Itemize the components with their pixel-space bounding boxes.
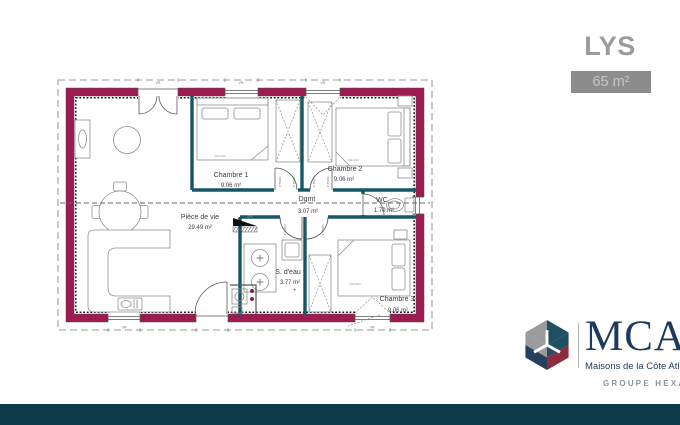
round-table [114, 127, 141, 154]
total-area-badge: 65 m² [571, 71, 651, 93]
shutter-label: VR [239, 81, 244, 85]
sideboard [75, 120, 90, 158]
kitchen-counter [88, 230, 170, 312]
room-area-s-deau: 3.77 m² [280, 280, 300, 286]
door-spec-label: P 75204 [278, 176, 282, 187]
edf-label: EDF [247, 215, 253, 219]
footer-bar [0, 404, 680, 425]
pillow [392, 268, 405, 290]
shutter-label: VR [370, 326, 375, 330]
floor-plan-page: LYS 65 m² VR VR VR VR VR [0, 0, 680, 425]
pillow [388, 112, 401, 136]
room-area-wc: 1.70 m² [374, 208, 394, 214]
room-label-chambre-3: Chambre 3 [380, 296, 415, 303]
floor-plan-drawing: VR VR VR VR VR [48, 70, 438, 338]
door-spec-label: P 75204 [292, 176, 296, 187]
room-area-chambre-3: 9.06 m² [388, 308, 408, 314]
room-label-wc: WC [376, 197, 388, 204]
nightstand [398, 96, 412, 106]
door-spec-label: P 75204 [312, 176, 316, 187]
shutter-label: VR [156, 81, 161, 85]
toilet-tank [405, 198, 414, 212]
pillow [234, 108, 260, 119]
logo-tagline: Maisons de la Côte Atlantique [585, 361, 680, 372]
wardrobe [276, 100, 300, 162]
logo-brand: MCA [585, 314, 680, 360]
room-label-dgmt: Dgmt [299, 196, 316, 203]
builder-logo: MCA Maisons de la Côte Atlantique GROUPE… [521, 314, 680, 386]
room-label-chambre-1: Chambre 1 [214, 172, 249, 179]
nightstand [398, 168, 412, 178]
door-spec-label: P 75204 [321, 224, 325, 235]
technical-closet [230, 285, 256, 315]
logo-divider [578, 323, 579, 368]
bed-size-label: 140x200 [347, 158, 359, 162]
pillow [392, 244, 405, 266]
bedroom1-furniture: 140x200 [197, 98, 300, 162]
room-area-chambre-2: 9.06 m² [334, 177, 354, 183]
pillow [388, 139, 401, 163]
window [306, 86, 340, 101]
bed [197, 98, 268, 160]
logo-group: GROUPE HEXAOM [603, 379, 680, 388]
drain-mark: + [293, 288, 297, 294]
shutter-label: VR [122, 326, 127, 330]
wardrobe [308, 102, 332, 162]
window [355, 309, 390, 324]
room-area-dgmt: 3.07 m² [298, 209, 318, 215]
shutter-label: VR [321, 81, 326, 85]
bed-size-label: 140x200 [349, 282, 361, 286]
french-door-opening [138, 86, 178, 101]
pillow [202, 108, 228, 119]
door-spec-label: P 75204 [283, 224, 287, 235]
room-label-chambre-2: Chambre 2 [328, 166, 363, 173]
nightstand [394, 230, 407, 239]
room-area-piece-de-vie: 29.49 m² [188, 225, 212, 231]
wardrobe [309, 255, 331, 312]
room-label-piece-de-vie: Pièce de vie [181, 214, 219, 221]
room-label-s-deau: S. d'eau [275, 269, 301, 276]
plan-title: LYS [552, 31, 668, 62]
door-spec-label: P 75204 [326, 176, 330, 187]
bed-size-label: 140x200 [214, 154, 226, 158]
mca-cube-icon [523, 318, 571, 372]
interior-doors: P 75204 P 75204 P 75204 P 75204 P 75204 … [275, 168, 384, 239]
room-area-chambre-1: 9.06 m² [221, 183, 241, 189]
kitchen-sink [118, 298, 142, 310]
